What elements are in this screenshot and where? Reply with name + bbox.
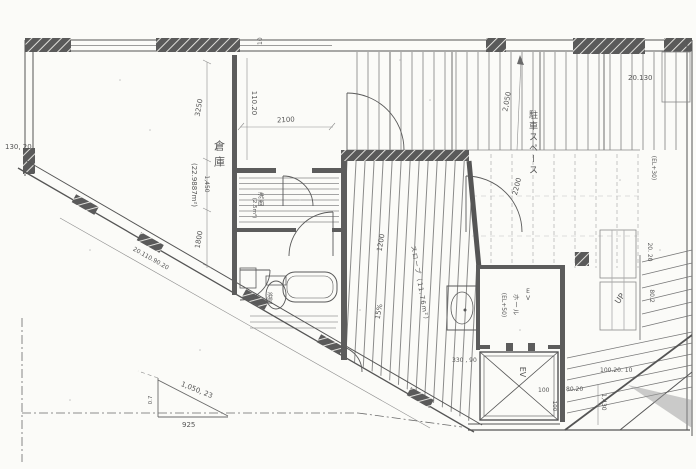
dim-2100: 2100: [277, 116, 295, 125]
dim-100: 100: [538, 387, 550, 394]
dim-1450: 1,450: [203, 175, 210, 192]
dim-330-90: 330 , 90: [452, 357, 477, 364]
dim-925: 925: [182, 421, 195, 429]
dim-80-2: 80.2: [648, 289, 655, 303]
label-warehouse-area: (22.9887m²): [190, 163, 198, 207]
label-parking-level: (EL+30): [650, 156, 657, 180]
dim-110-20: 110.20: [250, 91, 258, 116]
label-ev-hall: ホール: [512, 294, 520, 317]
parking-hatch-area: [347, 52, 684, 150]
label-bath: 浴室: [266, 291, 273, 304]
dim-130-20: 130, 20: [5, 143, 32, 151]
dim-100-vert: 100: [551, 401, 557, 412]
dim-20-20: 20. 20: [646, 242, 653, 261]
label-parking: 駐車スペース: [527, 109, 538, 176]
label-washroom-area: (2.5m²): [251, 198, 258, 219]
dim-80-20: 80.20: [566, 386, 583, 393]
dim-20-130: 20.130: [628, 74, 653, 82]
floor-plan-page: 倉庫 (22.9887m²) スロープ（11.76m²） 15% 駐車スペース …: [0, 0, 696, 469]
floor-plan-svg: 倉庫 (22.9887m²) スロープ（11.76m²） 15% 駐車スペース …: [0, 0, 696, 469]
label-warehouse: 倉庫: [213, 139, 226, 172]
dim-1430: 1,430: [600, 393, 607, 410]
label-ev-hall-level: (EL+50): [500, 293, 507, 317]
label-elevator-shaft: EV: [518, 367, 527, 378]
dim-0-7: 0.7: [148, 395, 154, 404]
dim-10: 10: [257, 37, 264, 45]
label-ev-hall-ev: EV: [525, 288, 532, 302]
dim-100-20-10: 100.20. 10: [600, 367, 633, 374]
open-area-dashed-grid: [472, 152, 640, 268]
